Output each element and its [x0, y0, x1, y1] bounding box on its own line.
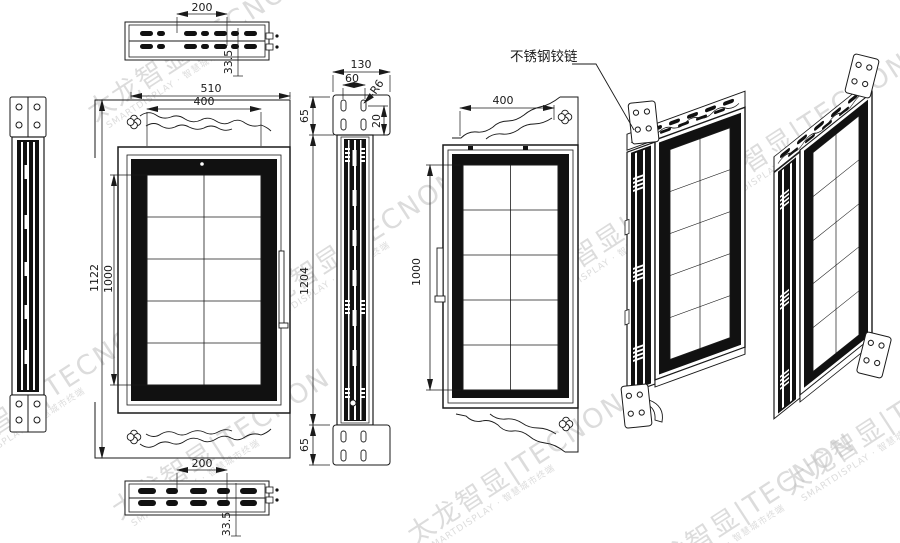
dim-top-rail-pitch: 200 — [192, 1, 213, 14]
drawing-canvas: 太龙智显|TECNONSMARTDISPLAY · 智慧城市终端 太龙智显|TE… — [0, 0, 900, 543]
front-view-open — [426, 97, 578, 452]
dim-bottom-rail-offset: 33.5 — [220, 512, 233, 537]
dim-side-body-height: 1204 — [298, 267, 311, 295]
isometric-view-1 — [621, 91, 745, 428]
hinge-label: 不锈钢铰链 — [510, 49, 578, 65]
hinge-bracket-bottom — [621, 384, 652, 429]
dim-side-top-bracket: 65 — [298, 109, 311, 123]
dim-side-bracket-width: 130 — [351, 58, 372, 71]
watermark-text: 太龙智显|TECNON — [402, 387, 631, 543]
dim-front-overall-width: 510 — [201, 82, 222, 95]
dim-side-slot-edge-offset: 20 — [370, 114, 383, 128]
dim-bottom-rail-pitch: 200 — [192, 457, 213, 470]
hinge-bracket-top — [628, 101, 659, 145]
dim-side-bottom-bracket: 65 — [298, 438, 311, 452]
dim-side-slot-spacing: 60 — [345, 72, 359, 85]
break-symbol-clover — [127, 430, 141, 444]
dim-front-screen-height: 1000 — [102, 265, 115, 293]
dim-open-screen-height: 1000 — [410, 258, 423, 286]
front-view-closed — [95, 92, 290, 458]
dim-open-screen-width: 400 — [493, 94, 514, 107]
dim-front-screen-width: 400 — [194, 95, 215, 108]
door-handle — [437, 248, 443, 298]
cad-drawing-svg: 太龙智显|TECNONSMARTDISPLAY · 智慧城市终端 太龙智显|TE… — [0, 0, 900, 543]
dim-side-corner-radius: R6 — [368, 77, 387, 96]
dim-top-rail-offset: 33.5 — [222, 50, 235, 75]
left-side-profile-view — [10, 97, 46, 432]
door-handle — [279, 251, 284, 326]
break-symbol-clover — [558, 110, 572, 124]
dim-front-overall-height: 1122 — [88, 264, 101, 292]
